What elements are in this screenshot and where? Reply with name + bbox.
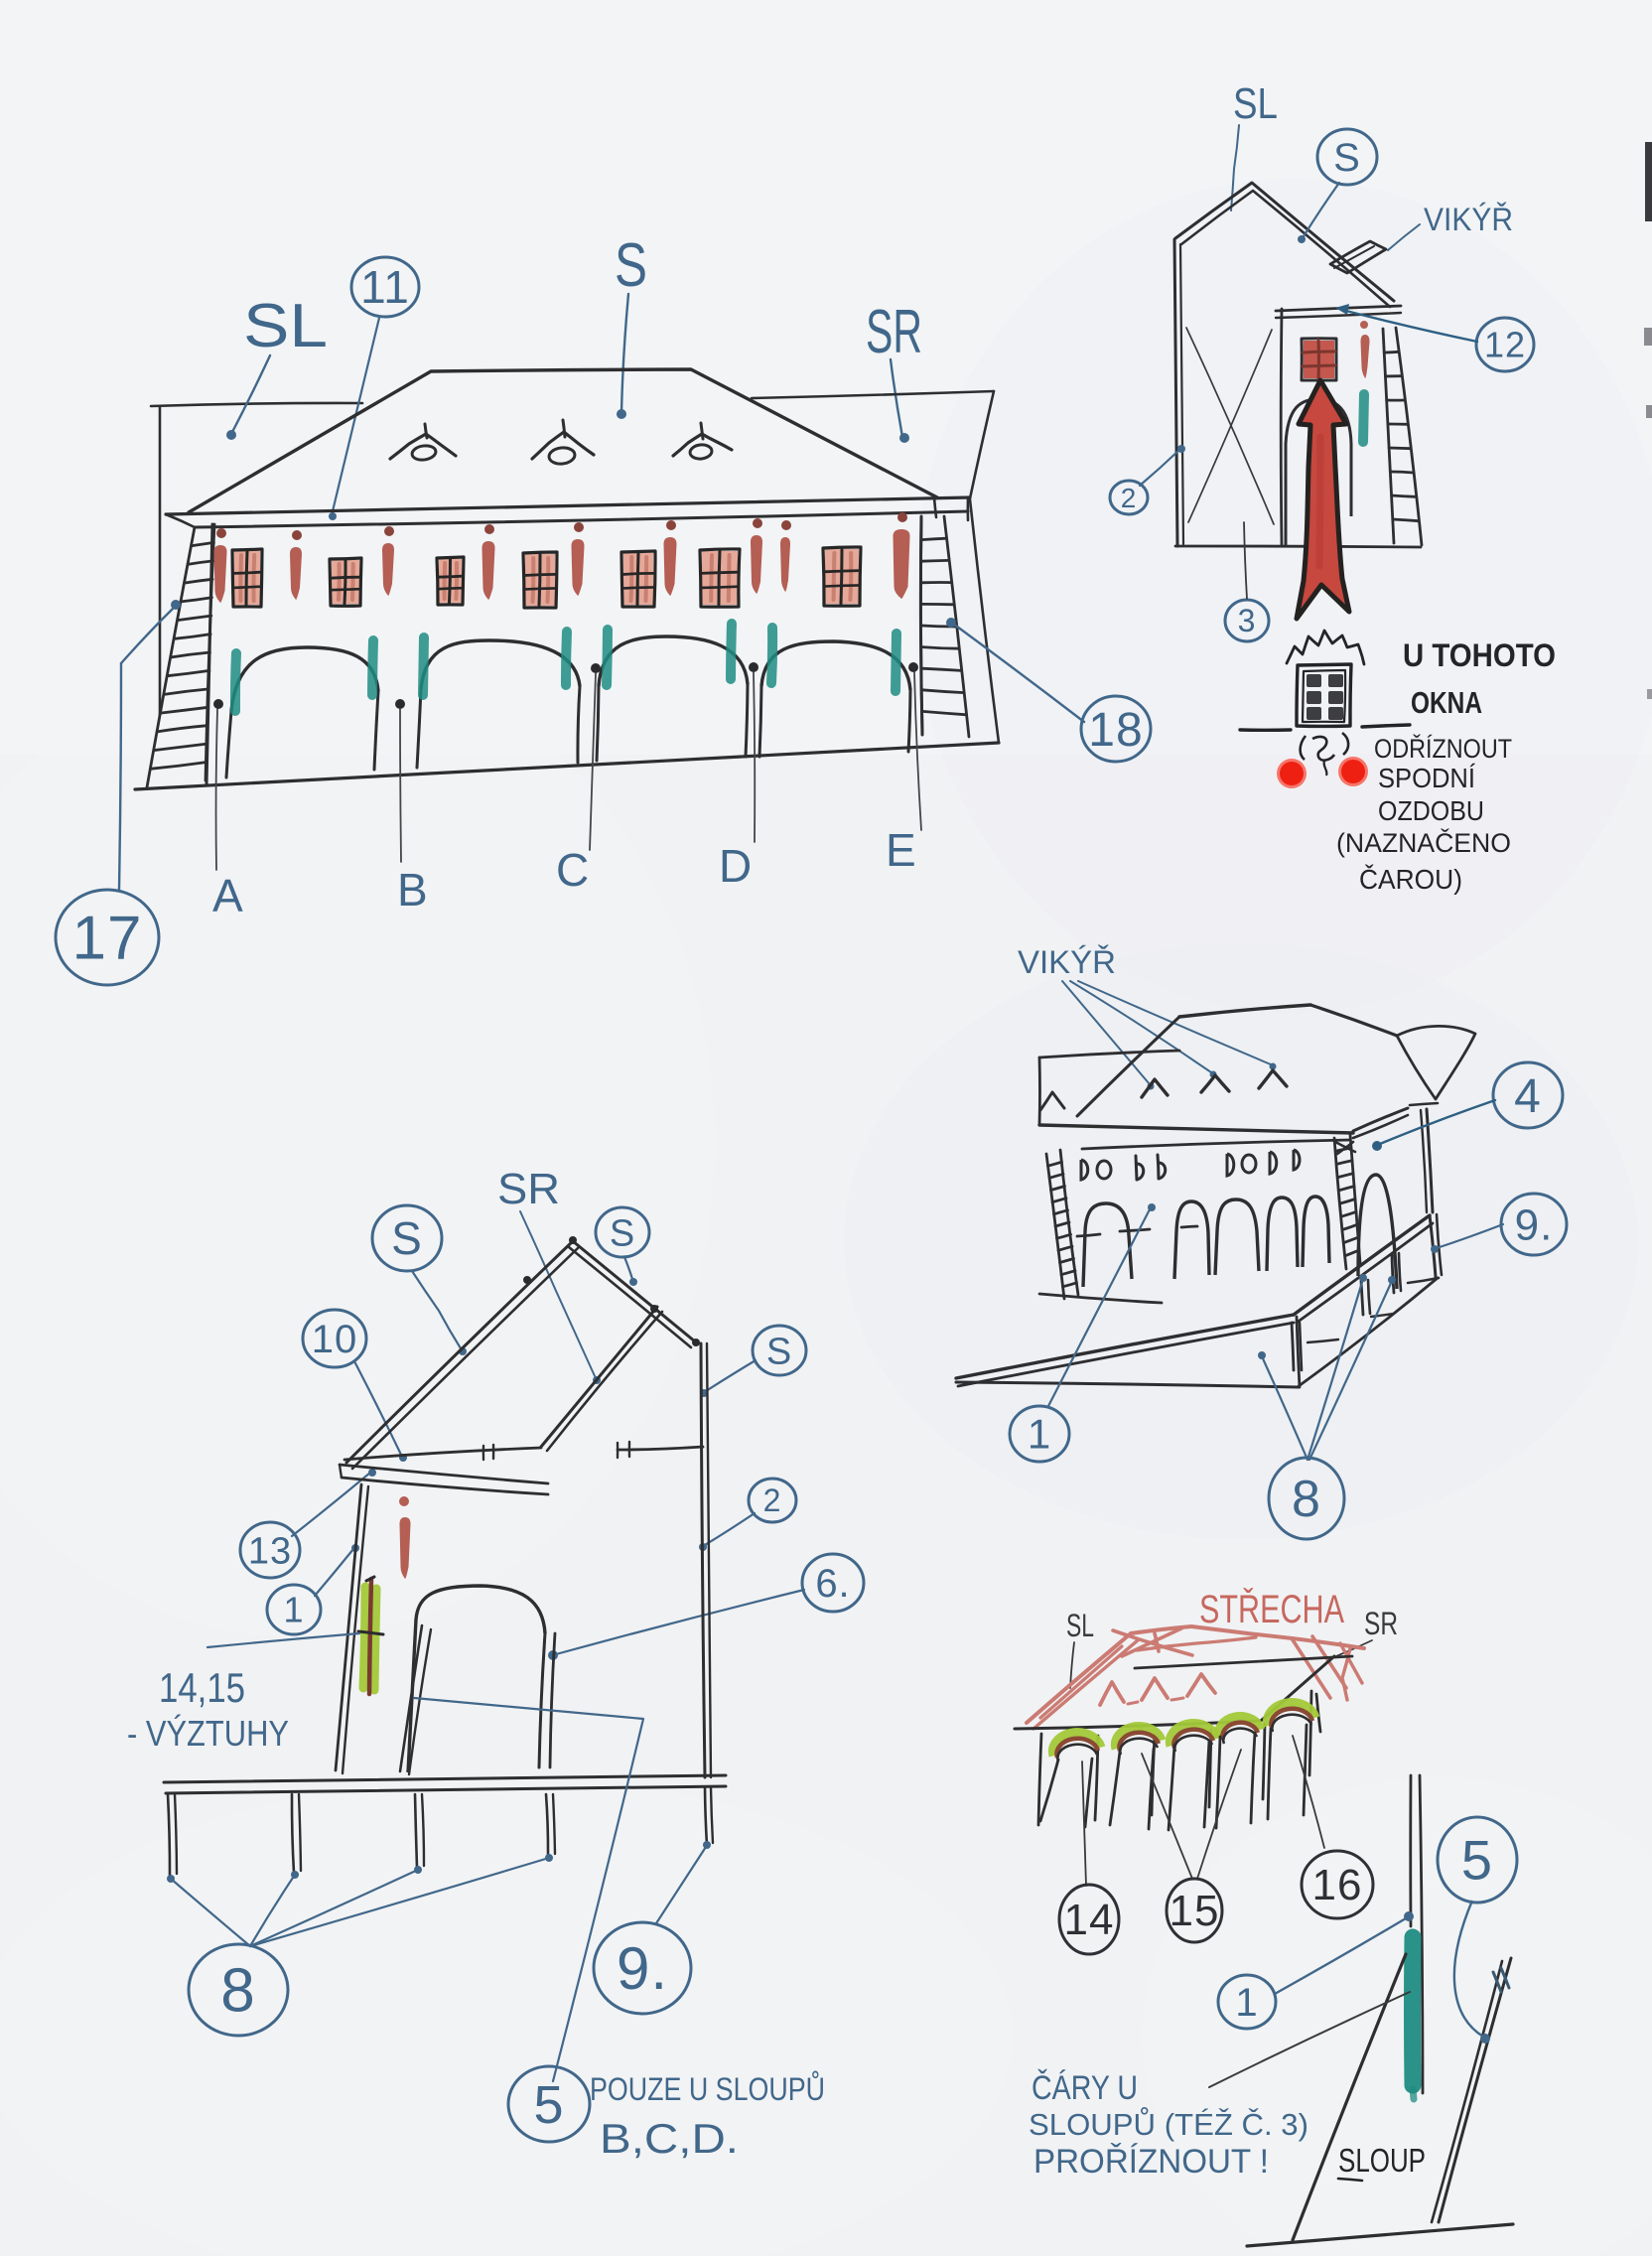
svg-text:PROŘÍZNOUT !: PROŘÍZNOUT ! (1033, 2143, 1269, 2181)
svg-text:ČAROU): ČAROU) (1359, 864, 1462, 895)
svg-text:C: C (556, 844, 591, 896)
svg-text:S: S (766, 1331, 792, 1372)
svg-text:B: B (397, 864, 430, 916)
svg-text:14: 14 (1064, 1896, 1115, 1944)
svg-text:B,C,D.: B,C,D. (600, 2115, 739, 2162)
svg-text:S: S (1333, 136, 1361, 180)
svg-text:- VÝZTUHY: - VÝZTUHY (127, 1713, 289, 1754)
svg-text:5: 5 (1461, 1829, 1493, 1892)
svg-text:E: E (886, 824, 918, 876)
svg-text:VIKÝŘ: VIKÝŘ (1018, 944, 1116, 980)
svg-text:SL: SL (1233, 79, 1278, 128)
svg-text:6.: 6. (815, 1562, 850, 1606)
svg-text:S: S (610, 1212, 635, 1254)
svg-text:12: 12 (1484, 325, 1526, 365)
svg-text:13: 13 (248, 1530, 292, 1572)
svg-text:SPODNÍ: SPODNÍ (1378, 763, 1475, 793)
svg-text:SLOUPŮ (TÉŽ Č. 3): SLOUPŮ (TÉŽ Č. 3) (1029, 2106, 1308, 2142)
svg-text:S: S (391, 1212, 423, 1264)
svg-text:A: A (212, 870, 245, 921)
svg-text:SL: SL (243, 292, 328, 360)
svg-text:U TOHOTO: U TOHOTO (1403, 637, 1556, 673)
svg-text:2: 2 (1121, 483, 1138, 513)
svg-text:SR: SR (497, 1165, 560, 1213)
svg-text:3: 3 (1238, 603, 1257, 638)
svg-text:11: 11 (360, 261, 410, 313)
svg-text:4: 4 (1514, 1070, 1542, 1123)
svg-text:SLOUP: SLOUP (1338, 2142, 1426, 2179)
svg-text:STŘECHA: STŘECHA (1199, 1587, 1344, 1631)
svg-text:(NAZNAČENO: (NAZNAČENO (1336, 827, 1511, 858)
svg-text:D: D (719, 840, 754, 892)
svg-text:OZDOBU: OZDOBU (1378, 795, 1484, 826)
svg-text:8: 8 (1292, 1471, 1321, 1528)
svg-text:15: 15 (1170, 1887, 1220, 1935)
svg-text:14,15: 14,15 (159, 1664, 245, 1711)
svg-text:17: 17 (72, 905, 143, 973)
svg-text:1: 1 (1028, 1411, 1051, 1458)
svg-text:16: 16 (1312, 1861, 1363, 1909)
svg-text:ODŘÍZNOUT: ODŘÍZNOUT (1374, 733, 1512, 764)
svg-text:5: 5 (533, 2075, 564, 2135)
svg-text:8: 8 (220, 1957, 255, 2026)
svg-text:ČÁRY U: ČÁRY U (1032, 2069, 1138, 2107)
svg-text:VIKÝŘ: VIKÝŘ (1424, 202, 1513, 237)
svg-text:10: 10 (312, 1318, 358, 1361)
svg-text:1: 1 (283, 1590, 304, 1630)
svg-text:SL: SL (1066, 1608, 1094, 1643)
svg-text:1: 1 (1235, 1981, 1258, 2025)
svg-text:2: 2 (763, 1482, 782, 1518)
svg-text:9.: 9. (617, 1935, 668, 2002)
svg-text:SR: SR (866, 298, 922, 366)
svg-text:18: 18 (1088, 704, 1143, 757)
svg-text:9.: 9. (1515, 1200, 1554, 1249)
svg-text:SR: SR (1364, 1606, 1398, 1641)
svg-text:S: S (615, 231, 647, 300)
svg-text:POUZE U SLOUPŮ: POUZE U SLOUPŮ (590, 2071, 825, 2107)
svg-text:OKNA: OKNA (1411, 685, 1482, 720)
